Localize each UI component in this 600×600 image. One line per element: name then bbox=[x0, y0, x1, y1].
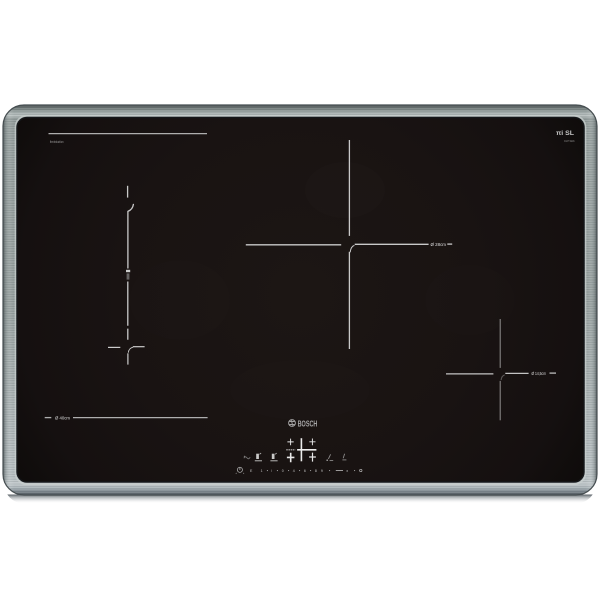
svg-text:0: 0 bbox=[282, 469, 284, 473]
svg-text:Ø 28cm: Ø 28cm bbox=[431, 242, 447, 247]
svg-text:flexInduction: flexInduction bbox=[50, 140, 64, 144]
svg-text:Ø 40cm: Ø 40cm bbox=[55, 416, 70, 421]
svg-text:1: 1 bbox=[261, 469, 263, 473]
svg-text:SCHOTT CERAN: SCHOTT CERAN bbox=[564, 139, 575, 143]
svg-text:πi SL: πi SL bbox=[556, 130, 574, 137]
svg-text:/: / bbox=[271, 469, 272, 473]
svg-text:8: 8 bbox=[315, 469, 317, 473]
svg-text:4: 4 bbox=[293, 469, 295, 473]
svg-text:Ø 14,5cm: Ø 14,5cm bbox=[532, 371, 547, 376]
svg-text:6: 6 bbox=[304, 469, 306, 473]
svg-text:BOSCH: BOSCH bbox=[298, 419, 318, 428]
svg-text:x: x bbox=[346, 469, 348, 473]
svg-text:9: 9 bbox=[321, 469, 323, 473]
